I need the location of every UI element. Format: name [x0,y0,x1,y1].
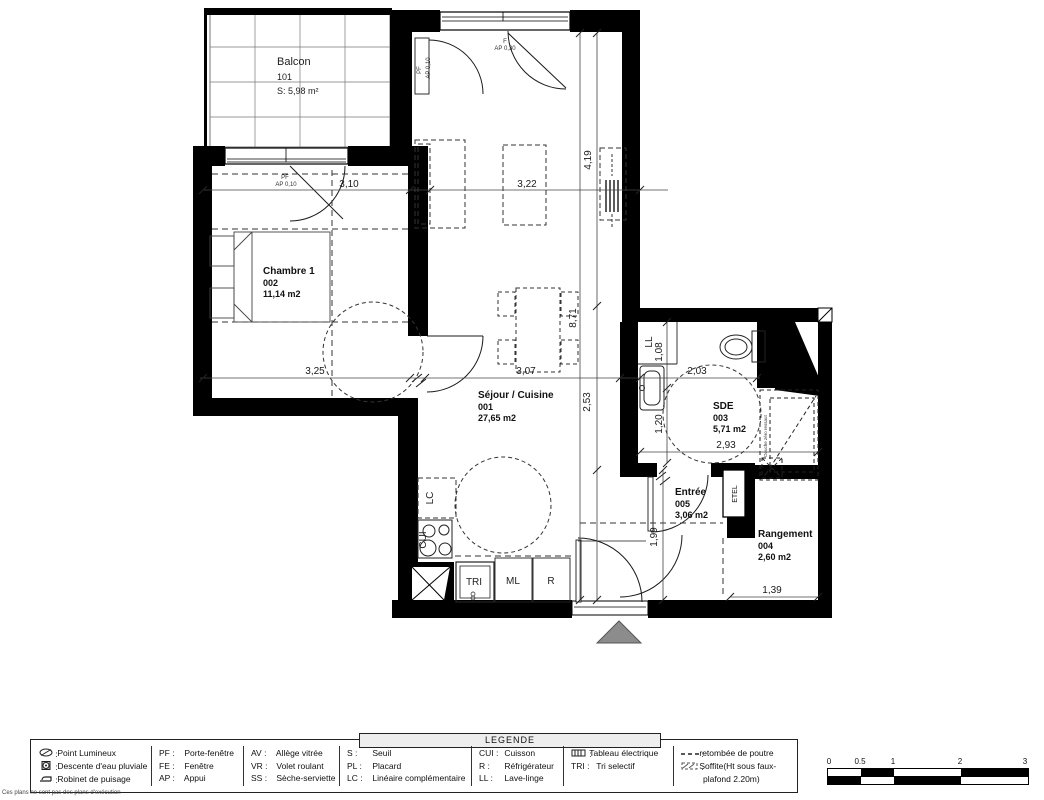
ml-label: ML [506,576,520,587]
svg-text:Entrée: Entrée [675,487,707,498]
legend-abbr: VR [251,760,274,773]
lc-label: LC [425,492,436,505]
room-sde: SDE 003 5,71 m2 [713,401,746,434]
room-sejour: Séjour / Cuisine 001 27,65 m2 [478,390,554,423]
dim-right-upper: 4,19 [583,150,594,170]
kitchen-sink-shaft [406,562,454,604]
window-sejour-top [440,12,570,30]
pf-sejour-ap-label: AP 0,10 [426,57,432,79]
dim-right-lower: 2,53 [582,392,593,412]
ll-label: LL [644,336,655,348]
legend-label: Tri selectif [596,761,634,771]
svg-text:SDE: SDE [713,401,734,412]
legend-divider [243,746,244,786]
legend-abbr: R [479,760,502,773]
balcony-railing [204,8,392,15]
window-swing-sejour [508,31,566,89]
washbasin [640,366,665,410]
corner-joint-marker [818,308,832,322]
svg-text:Balcon: Balcon [277,56,311,68]
douche-label: Douche zéro ressaut [763,414,768,456]
legend-abbr: AV [251,747,274,760]
legend-label: Porte-fenêtre [184,748,234,758]
entrance-arrow-marker [597,621,641,643]
scale-label: 0.5 [854,757,865,766]
legend-col-appliances: CUI Cuisson R Réfrigérateur LL Lave-ling… [479,747,554,785]
soffite-icon [681,761,697,774]
dim-entree-height: 1,99 [649,527,660,547]
dim-sejour-width: 3,22 [517,179,537,190]
floor-plan-drawing: 3,10 3,22 4,19 8,71 2,53 3,25 3,07 2,03 … [0,0,1044,735]
legend-label: Appui [184,773,206,783]
walls [193,10,832,618]
legend-abbr: CUI [479,747,502,760]
legend-label: Descente d'eau pluviale [57,761,147,771]
legend-label: retombée de poutre [699,748,773,758]
dim-chambre-width2: 3,25 [305,366,325,377]
svg-text:3,06 m2: 3,06 m2 [675,510,708,520]
retombee-poutre-icon [681,748,697,761]
equipment-labels: LC CUI TRI ML R LL ETEL Douche zéro ress… [418,336,768,588]
dim-sde-part: 2,03 [687,366,707,377]
legend-divider [151,746,152,786]
legend-label-cont: plafond 2.20m) [681,773,776,786]
legend-label: Volet roulant [276,761,323,771]
beam-lines [212,170,723,598]
legend-abbr: AP [159,772,182,785]
point-lumineux-icon [39,748,55,761]
svg-text:Chambre 1: Chambre 1 [263,266,315,277]
kitchen-lc-zone [418,478,456,518]
svg-text:S: 5,98 m²: S: 5,98 m² [277,86,319,96]
windows [225,12,648,615]
legend-divider [471,746,472,786]
etel-label: ETEL [732,485,739,503]
legend-divider [673,746,674,786]
dim-sejour-width2: 3,07 [516,366,536,377]
legend-abbr: LL [479,772,502,785]
dim-chambre-width: 3,10 [339,179,359,190]
dim-sde-height: 1,20 [654,414,665,434]
legend-label: Tableau électrique [589,748,658,758]
scale-bar-labels: 0 0.5 1 2 3 [827,757,1029,768]
legend-abbr: SS [251,772,274,785]
bed [210,232,330,322]
legend-label: Placard [372,761,401,771]
legend-label: Fenêtre [184,761,213,771]
window-chambre [225,148,348,164]
legend-label: Allège vitrée [276,748,323,758]
dimension-labels: 3,10 3,22 4,19 8,71 2,53 3,25 3,07 2,03 … [305,150,782,596]
pf-chambre-label: PF [281,175,289,181]
svg-text:Séjour / Cuisine: Séjour / Cuisine [478,390,554,401]
legend-label: Réfrigérateur [504,761,554,771]
legend-box: LEGENDE Point Lumineux Descente d'eau pl… [30,739,798,793]
tableau-electrique-icon [571,748,587,761]
door-entrance [576,538,646,602]
balcony [204,8,392,147]
legend-abbr: LC [347,772,370,785]
legend-label: Seuil [372,748,391,758]
legend-col-symbols: Point Lumineux Descente d'eau pluviale R… [39,747,147,786]
svg-text:27,65 m2: 27,65 m2 [478,413,516,423]
tri-label: TRI [466,577,482,588]
svg-text:101: 101 [277,72,292,82]
svg-text:11,14 m2: 11,14 m2 [263,289,301,299]
legend-abbr: PL [347,760,370,773]
legend-divider [563,746,564,786]
legend-title: LEGENDE [359,733,661,748]
legend-col-misc: S Seuil PL Placard LC Linéaire complémen… [347,747,465,785]
legend-label: Sèche-serviette [276,773,335,783]
legend-col-openings: PF Porte-fenêtre FE Fenêtre AP Appui [159,747,234,785]
cui-label: CUI [418,531,429,548]
room-entree: Entrée 005 3,06 m2 [675,487,708,520]
entrance-sill [572,601,648,615]
dim-right-total: 8,71 [568,308,579,328]
dim-sde-width: 2,93 [716,440,736,451]
legend-abbr: S [347,747,370,760]
legend-col-electrical: Tableau électrique TRI Tri selectif [571,747,658,773]
nightstand [210,288,234,318]
room-rangement: Rangement 004 2,60 m2 [758,529,813,562]
legend-label: Point Lumineux [57,748,116,758]
legend-label: Cuisson [504,748,535,758]
duct-shaft [775,322,820,396]
room-balcon: Balcon 101 S: 5,98 m² [277,56,319,96]
svg-text:002: 002 [263,278,278,288]
dim-rangement-width: 1,39 [762,585,782,596]
f-sejour-label: F [503,39,507,45]
nightstand [210,236,234,266]
legend-label: Linéaire complémentaire [372,773,465,783]
svg-text:001: 001 [478,402,493,412]
legend-abbr: FE [159,760,182,773]
svg-text:Rangement: Rangement [758,529,813,540]
pf-sejour-label: PF [417,66,423,74]
svg-text:005: 005 [675,499,690,509]
r-label: R [547,576,554,587]
dim-ll-height: 1,08 [654,342,665,362]
descente-eau-icon [39,761,55,774]
room-chambre: Chambre 1 002 11,14 m2 [263,266,315,299]
svg-text:003: 003 [713,413,728,423]
legend-divider [339,746,340,786]
svg-text:2,60 m2: 2,60 m2 [758,552,791,562]
scale-label: 1 [891,757,895,766]
legend-col-ceiling: retombée de poutre Soffite(Ht sous faux-… [681,747,776,786]
legend-label: Robinet de puisage [57,774,130,784]
floor-plan-page: 3,10 3,22 4,19 8,71 2,53 3,25 3,07 2,03 … [0,0,1044,800]
robinet-puisage-icon [39,774,55,787]
dining-set [498,288,578,372]
svg-text:004: 004 [758,541,773,551]
legend-col-glazing: AV Allège vitrée VR Volet roulant SS Sèc… [251,747,335,785]
scale-label: 2 [958,757,962,766]
scale-bar-rows [827,768,1029,785]
legend-label: Lave-linge [504,773,543,783]
scale-bar: 0 0.5 1 2 3 [827,757,1029,785]
legend-abbr: TRI [571,760,594,773]
f-sejour-ap-label: AP 0,30 [494,46,516,52]
footnote: Ces plans ne sont pas des plans d'exécut… [2,790,121,796]
pf-chambre-ap-label: AP 0,10 [275,182,297,188]
legend-label: Soffite(Ht sous faux- [699,761,776,771]
legend-abbr: PF [159,747,182,760]
scale-label: 3 [1023,757,1027,766]
door-chambre [427,336,483,392]
scale-label: 0 [827,757,831,766]
svg-text:5,71 m2: 5,71 m2 [713,424,746,434]
